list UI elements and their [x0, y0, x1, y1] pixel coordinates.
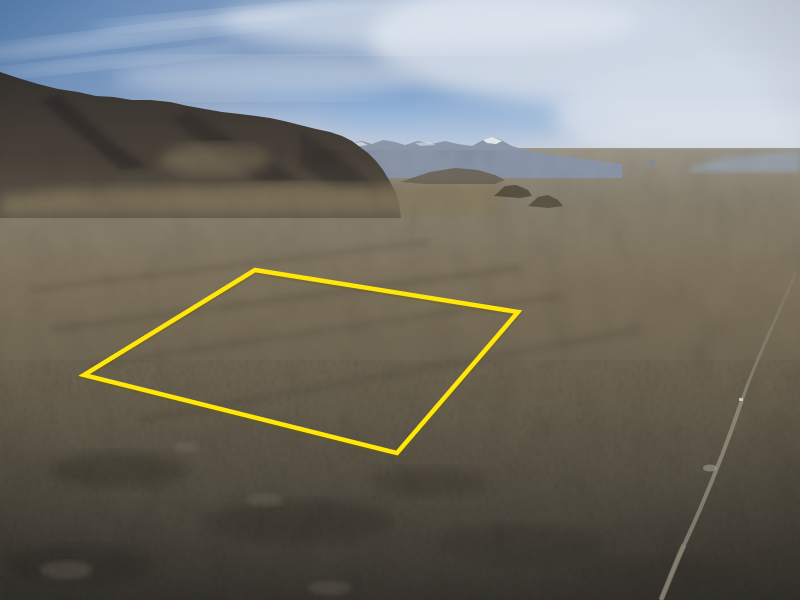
aerial-photo	[0, 0, 800, 600]
photo-canvas	[0, 0, 800, 600]
vignette	[0, 0, 800, 600]
